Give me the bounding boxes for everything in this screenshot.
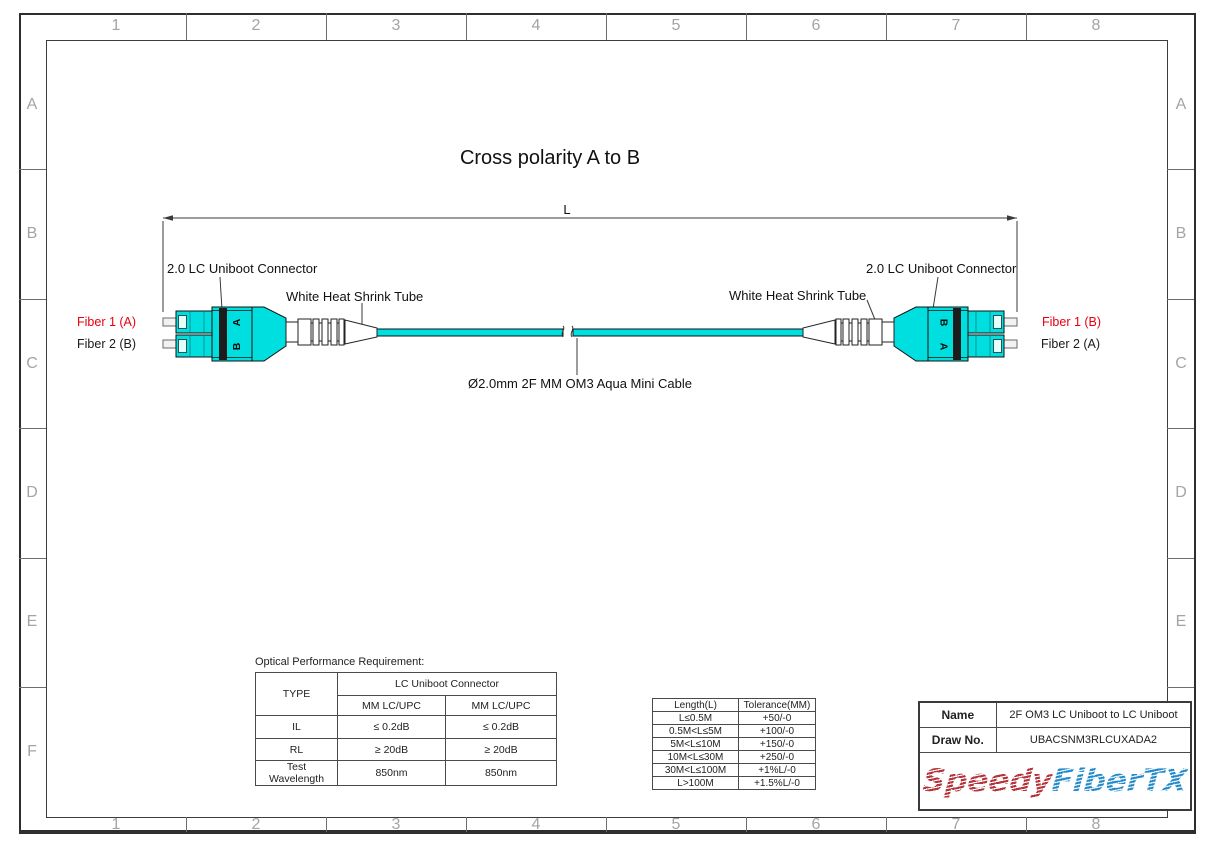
logo-speedy-text: Speedy (921, 763, 1053, 799)
right-connector-letter-bottom: A (938, 343, 950, 351)
optical-cell: 850nm (446, 761, 557, 786)
cable-label: Ø2.0mm 2F MM OM3 Aqua Mini Cable (460, 376, 700, 391)
right-connector-letter-top: B (938, 319, 950, 327)
tolerance-cell: +1.5%L/-0 (739, 777, 816, 790)
left-heat-shrink-label: White Heat Shrink Tube (286, 289, 423, 304)
length-cell: 5M<L≤10M (653, 738, 739, 751)
length-cell: 10M<L≤30M (653, 751, 739, 764)
left-connector-letter-top: A (231, 318, 243, 326)
table-row: RL ≥ 20dB ≥ 20dB (256, 739, 557, 761)
table-row: 10M<L≤30M +250/-0 (653, 751, 816, 764)
right-heat-shrink-label: White Heat Shrink Tube (729, 288, 866, 303)
dimension-label: L (555, 202, 579, 217)
right-uniboot-connector (803, 307, 1017, 361)
name-value: 2F OM3 LC Uniboot to LC Uniboot (996, 702, 1191, 728)
right-fiber1-label: Fiber 1 (B) (1042, 315, 1101, 329)
tolerance-header: Tolerance(MM) (739, 699, 816, 712)
tolerance-cell: +50/-0 (739, 712, 816, 725)
table-row: 30M<L≤100M +1%L/-0 (653, 764, 816, 777)
optical-subheader: MM LC/UPC (338, 696, 446, 716)
tolerance-cell: +1%L/-0 (739, 764, 816, 777)
left-fiber2-label: Fiber 2 (B) (77, 337, 136, 351)
length-tolerance-table: Length(L) Tolerance(MM) L≤0.5M +50/-0 0.… (652, 698, 816, 790)
optical-group-header: LC Uniboot Connector (338, 673, 557, 696)
optical-table-caption: Optical Performance Requirement: (255, 656, 424, 668)
length-cell: L≤0.5M (653, 712, 739, 725)
optical-cell: ≥ 20dB (446, 739, 557, 761)
left-connector-label: 2.0 LC Uniboot Connector (167, 261, 317, 276)
logo-fibertx-text: FiberTX (1050, 763, 1189, 799)
optical-row-label: RL (256, 739, 338, 761)
optical-cell: 850nm (338, 761, 446, 786)
dimension-arrow-left (163, 215, 173, 221)
drawing-sheet: 1 2 3 4 5 6 7 8 1 2 3 4 5 6 7 8 A B C D … (0, 0, 1214, 858)
draw-no-label: Draw No. (919, 728, 996, 753)
length-cell: 30M<L≤100M (653, 764, 739, 777)
table-row: IL ≤ 0.2dB ≤ 0.2dB (256, 716, 557, 739)
title-block: Name 2F OM3 LC Uniboot to LC Uniboot Dra… (918, 701, 1192, 811)
aqua-cable (377, 326, 803, 337)
table-row: 0.5M<L≤5M +100/-0 (653, 725, 816, 738)
right-connector-label: 2.0 LC Uniboot Connector (866, 261, 1016, 276)
left-uniboot-connector (163, 307, 377, 361)
tolerance-cell: +150/-0 (739, 738, 816, 751)
optical-performance-table: TYPE LC Uniboot Connector MM LC/UPC MM L… (255, 672, 557, 786)
table-row: Test Wavelength 850nm 850nm (256, 761, 557, 786)
left-connector-letter-bottom: B (231, 342, 243, 350)
optical-row-label: Test Wavelength (256, 761, 338, 786)
table-row: L>100M +1.5%L/-0 (653, 777, 816, 790)
dimension-arrow-right (1007, 215, 1017, 221)
length-cell: L>100M (653, 777, 739, 790)
name-label: Name (919, 702, 996, 728)
optical-type-header: TYPE (256, 673, 338, 716)
table-row: 5M<L≤10M +150/-0 (653, 738, 816, 751)
tolerance-cell: +100/-0 (739, 725, 816, 738)
table-row: Name 2F OM3 LC Uniboot to LC Uniboot (919, 702, 1191, 728)
tolerance-header: Length(L) (653, 699, 739, 712)
optical-cell: ≤ 0.2dB (338, 716, 446, 739)
optical-cell: ≥ 20dB (338, 739, 446, 761)
optical-row-label: IL (256, 716, 338, 739)
table-row: Draw No. UBACSNM3RLCUXADA2 (919, 728, 1191, 753)
table-row: SpeedyFiberTX (919, 753, 1191, 811)
left-fiber1-label: Fiber 1 (A) (77, 315, 136, 329)
tolerance-cell: +250/-0 (739, 751, 816, 764)
speedyfibertx-logo: SpeedyFiberTX (921, 763, 1188, 799)
optical-cell: ≤ 0.2dB (446, 716, 557, 739)
length-cell: 0.5M<L≤5M (653, 725, 739, 738)
optical-subheader: MM LC/UPC (446, 696, 557, 716)
table-row: L≤0.5M +50/-0 (653, 712, 816, 725)
draw-no-value: UBACSNM3RLCUXADA2 (996, 728, 1191, 753)
right-fiber2-label: Fiber 2 (A) (1041, 337, 1100, 351)
